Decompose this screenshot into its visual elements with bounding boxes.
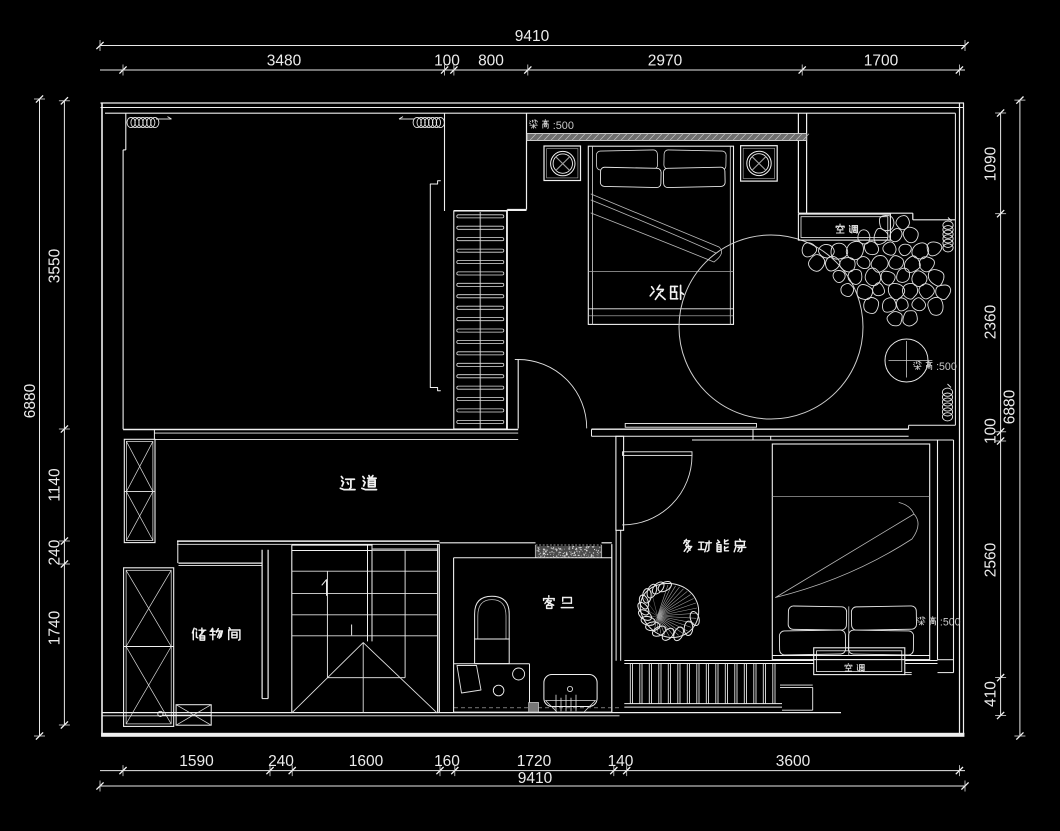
svg-text:6880: 6880 — [22, 383, 39, 418]
svg-text:2560: 2560 — [983, 542, 1000, 577]
svg-text:410: 410 — [983, 681, 1000, 707]
svg-text:3550: 3550 — [47, 248, 64, 283]
svg-text:1600: 1600 — [349, 753, 384, 770]
svg-text:240: 240 — [268, 753, 294, 770]
svg-text:1590: 1590 — [179, 753, 214, 770]
svg-text:3480: 3480 — [267, 53, 302, 70]
svg-text:1740: 1740 — [47, 610, 64, 645]
svg-text:1090: 1090 — [983, 146, 1000, 181]
svg-text:800: 800 — [478, 53, 504, 70]
svg-text:140: 140 — [608, 753, 634, 770]
svg-text:3600: 3600 — [776, 753, 811, 770]
svg-text:160: 160 — [434, 753, 460, 770]
svg-text:9410: 9410 — [515, 28, 550, 45]
svg-text::500: :500 — [553, 120, 574, 132]
svg-text:2360: 2360 — [983, 304, 1000, 339]
svg-text:1700: 1700 — [864, 53, 899, 70]
svg-text:100: 100 — [434, 53, 460, 70]
svg-text:100: 100 — [983, 418, 1000, 444]
svg-text:6880: 6880 — [1002, 389, 1019, 424]
svg-text:1720: 1720 — [517, 753, 552, 770]
svg-text:240: 240 — [47, 539, 64, 565]
svg-text:9410: 9410 — [518, 770, 553, 787]
svg-text::500: :500 — [940, 617, 961, 629]
svg-text:2970: 2970 — [648, 53, 683, 70]
svg-text::500: :500 — [936, 361, 957, 373]
svg-text:1140: 1140 — [47, 468, 64, 502]
